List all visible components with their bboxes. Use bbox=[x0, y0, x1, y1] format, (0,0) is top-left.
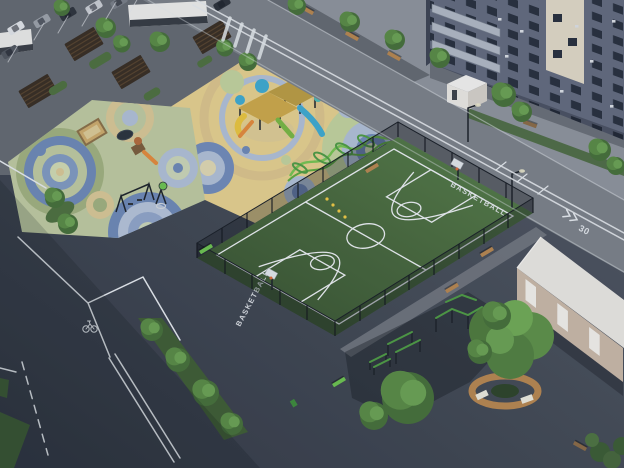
courtyard-render: BASKETBALL BASKETBALL bbox=[0, 0, 624, 468]
courtyard-scene: BASKETBALL BASKETBALL bbox=[0, 0, 624, 468]
dusk-tint bbox=[0, 0, 624, 468]
